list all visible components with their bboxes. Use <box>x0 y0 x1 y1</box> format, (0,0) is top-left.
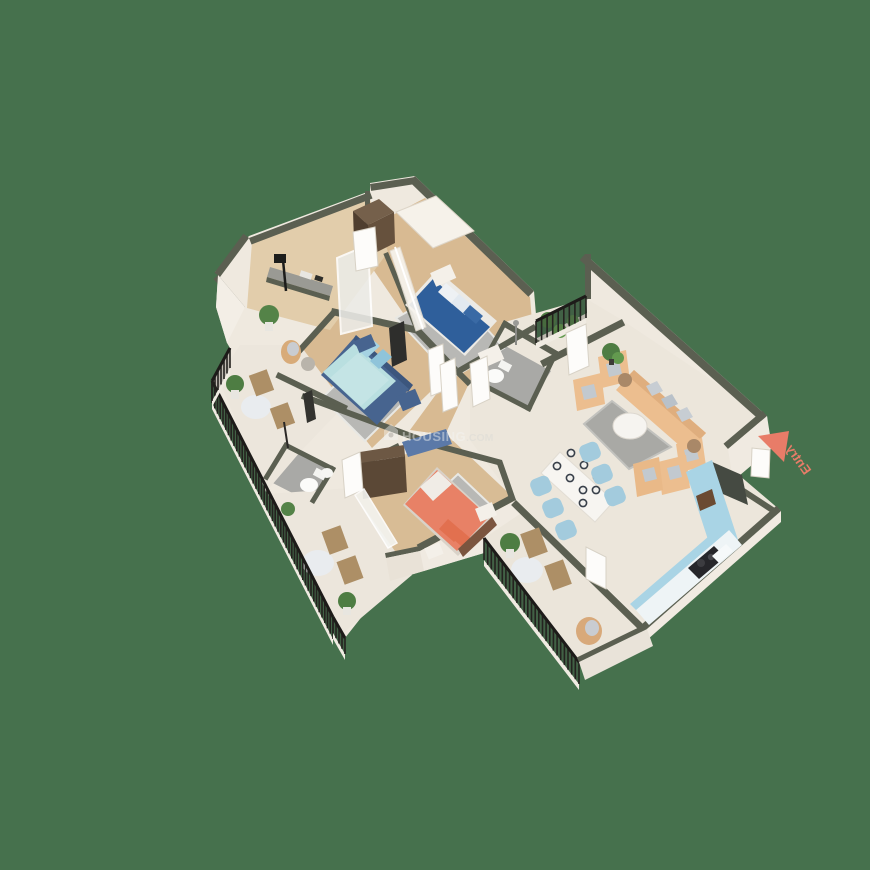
svg-text:.COM: .COM <box>466 432 494 444</box>
svg-text:HOUSING: HOUSING <box>402 429 466 444</box>
